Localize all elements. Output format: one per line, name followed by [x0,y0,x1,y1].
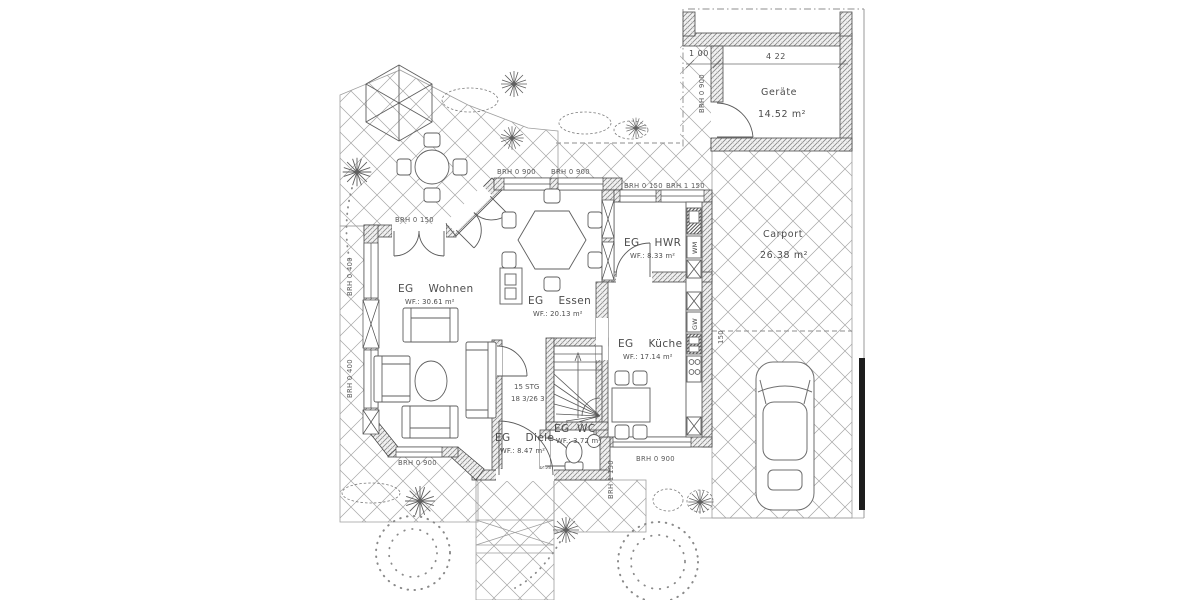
room-label-hwr: EG HWR [624,237,681,249]
armchair [374,356,410,402]
kitchen-chair [615,371,629,385]
kitchen-sink [687,334,701,354]
floor-plan-page: EG Wohnen WF.: 30.61 m² EG Essen WF.: 20… [0,0,1200,600]
room-area-wohnen: WF.: 30.61 m² [405,298,455,306]
patio-chair [453,159,467,175]
shrub [559,112,611,134]
dim-shed-width: 4 22 [766,52,786,61]
wall-post [602,200,614,238]
stairs-label-1: 15 STG [514,383,539,391]
stove [687,356,701,382]
wall-post [602,242,614,280]
boundary-wall-dark [859,358,865,510]
dining-chair [588,252,602,268]
window-hwr-1 [620,190,656,202]
dining-chair [502,212,516,228]
floor-plan-drawing: EG Wohnen WF.: 30.61 m² EG Essen WF.: 20… [0,0,1200,600]
room-label-wc: EG WC [554,423,596,435]
window-dining-1 [504,178,550,190]
sideboard [500,268,522,304]
shed-wall-right [840,33,852,151]
sofa [466,342,496,418]
wall-post [363,410,379,434]
sofa [403,308,458,342]
kitchen-chair [633,425,647,439]
wall-post [363,300,379,348]
room-area-hwr: WF.: 8.33 m² [630,252,675,260]
wall [702,202,712,447]
car-roof [763,402,807,460]
room-label-essen: EG Essen [528,295,591,307]
fridge [687,417,701,435]
tree-icon [501,71,527,97]
patio-chair [424,188,440,202]
window-hwr-2 [661,190,704,202]
coffee-table [415,361,447,401]
room-label-wohnen: EG Wohnen [398,283,474,295]
car-rear-window [768,470,802,490]
brh-shed-west: BRH 0 900 [698,74,706,113]
shed-wall-top [683,33,852,46]
stairs-label-2: 18 3/26 3 [511,395,545,403]
room-area-kueche: WF.: 17.14 m² [623,353,673,361]
brh-hwr-right: BRH 1 150 [666,182,705,190]
hwr-sink [687,208,701,234]
shed-wall-bottom [711,138,852,151]
dim-strip: 1 00 [689,49,709,58]
counter-unit [687,292,701,310]
tree-icon [688,490,711,513]
car [756,362,814,510]
kitchen-chair [633,371,647,385]
sofa [402,406,458,438]
brh-living-upper: BRH 0 400 [346,257,354,296]
washing-machine-label: WM [691,242,699,254]
boundary-post [683,12,695,36]
counter-unit [687,260,701,278]
brh-wc-east: BRH 1 150 [607,460,615,499]
dining-chair [544,277,560,291]
dining-chair [588,212,602,228]
room-area-essen: WF.: 20.13 m² [533,310,583,318]
brh-living-south: BRH 0 900 [398,459,437,467]
room-label-geraete: Geräte [761,87,797,98]
dishwasher-label: GW [691,318,699,330]
room-label-diele: EG Diele [495,432,554,444]
room-area-geraete: 14.52 m² [758,109,806,120]
dim-carport-mark: 150 [717,330,725,344]
window-living-south [396,447,442,457]
room-area-carport: 26.38 m² [760,250,808,261]
boundary-post [840,12,852,36]
room-area-wc: WF.: 3.72 m² [556,437,601,445]
brh-living-lower: BRH 0 400 [346,359,354,398]
room-label-carport: Carport [763,229,803,240]
shed-wall-left [711,46,723,102]
patio-chair [397,159,411,175]
wall-stairs-west [546,338,554,430]
brh-terrace-door: BRH 0 150 [395,216,434,224]
room-label-kueche: EG Küche [618,338,682,350]
room-area-diele: WF.: 8.47 m² [500,447,545,455]
brh-dining-right: BRH 0 900 [551,168,590,176]
brh-dining-left: BRH 0 900 [497,168,536,176]
shrub [653,489,683,511]
toilet [565,441,583,470]
dining-chair [544,189,560,203]
entrance-path [476,480,554,600]
brh-hwr-left: BRH 0 150 [624,182,663,190]
kitchen-chair [615,425,629,439]
dining-chair [502,252,516,268]
window-living-west-1 [364,243,378,298]
patio-table [415,150,449,184]
window-dining-2 [558,178,603,190]
patio-chair [424,133,440,147]
kitchen-table [612,388,650,422]
brh-kitchen-south: BRH 0 900 [636,455,675,463]
